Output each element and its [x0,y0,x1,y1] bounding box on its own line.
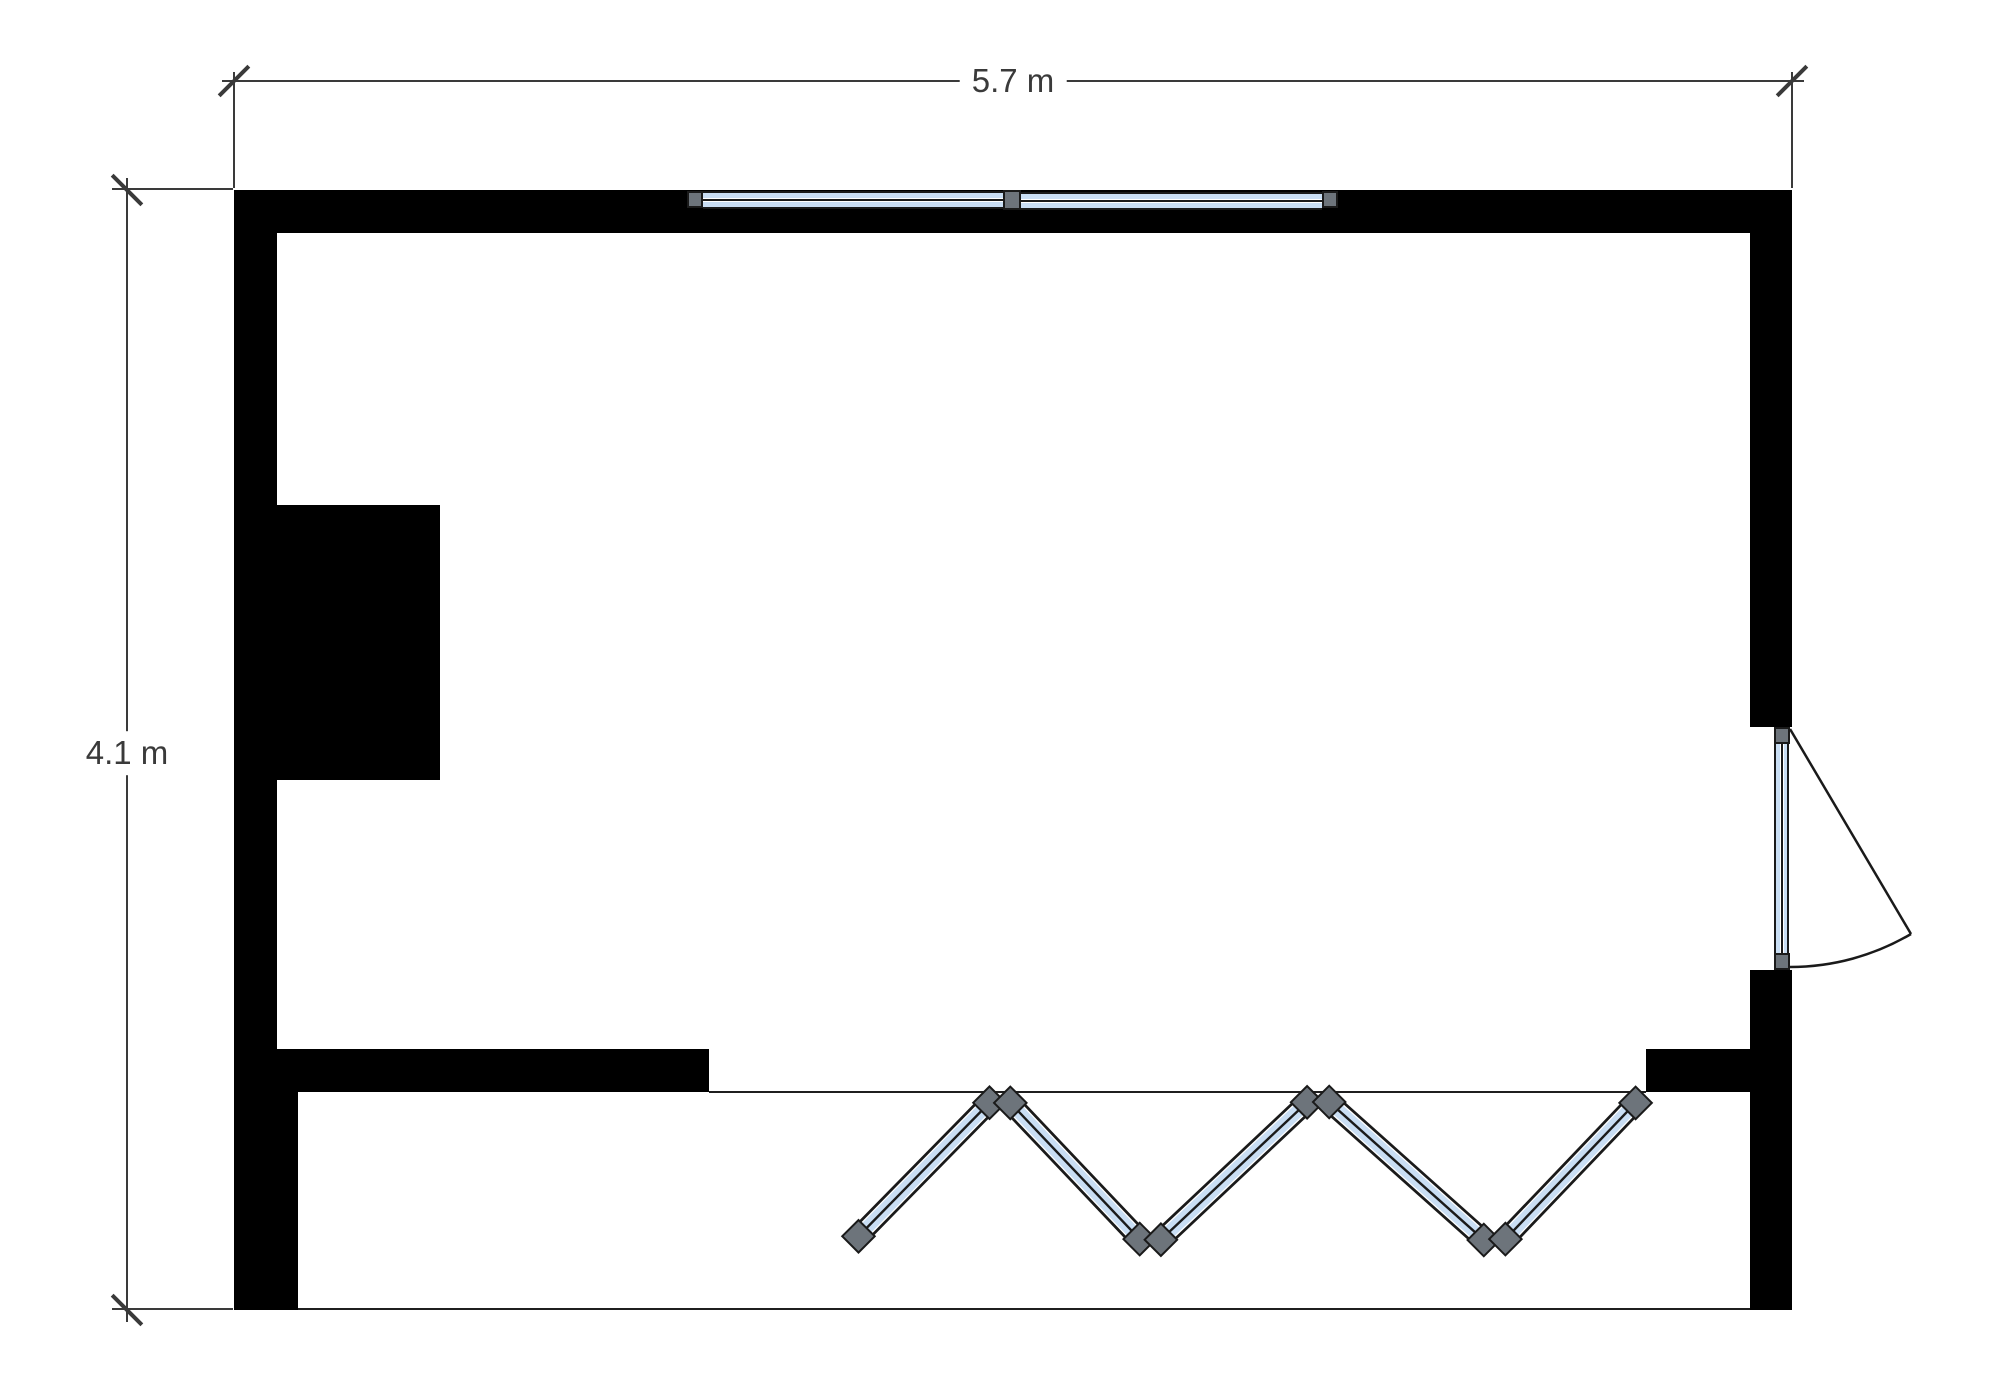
folding-door-panel [1498,1095,1643,1247]
folding-door-panel [1003,1095,1147,1247]
plan-overlay [0,0,2000,1390]
floor-plan: 5.7 m 4.1 m [0,0,2000,1390]
door-open-leaf-line [1790,729,1911,934]
folding-door-panel [1321,1095,1492,1248]
folding-door-panel [1153,1095,1315,1248]
folding-door-panel [851,1095,997,1244]
door-swing-arc [1790,934,1911,967]
door-swing [1790,729,1911,967]
folding-door [842,1086,1652,1257]
